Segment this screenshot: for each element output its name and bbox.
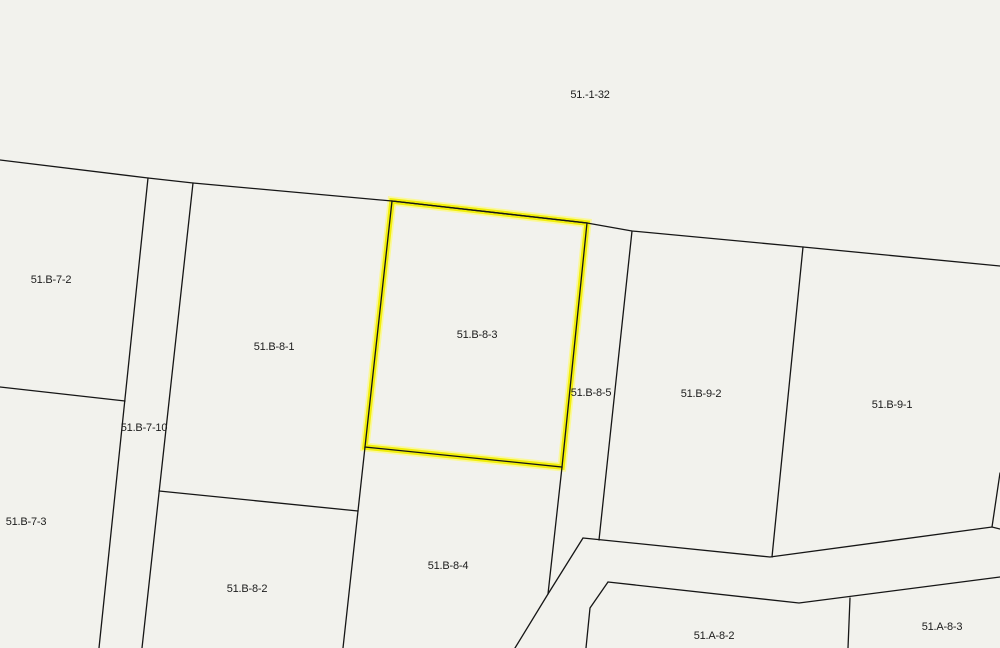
parcel-label-51-a-8-3: 51.A-8-3 <box>922 621 963 633</box>
parcel-label-51-b-8-4: 51.B-8-4 <box>428 560 469 572</box>
parcel-label-51-b-8-2: 51.B-8-2 <box>227 583 268 595</box>
parcel-label-51-b-9-1: 51.B-9-1 <box>872 399 913 411</box>
parcel-map-canvas[interactable]: 51.-1-32 51.B-7-2 51.B-8-1 51.B-8-3 51.B… <box>0 0 1000 648</box>
parcel-label-51-b-7-10: 51.B-7-10 <box>121 422 168 434</box>
parcel-label-51-b-7-3: 51.B-7-3 <box>6 516 47 528</box>
map-svg: 51.-1-32 51.B-7-2 51.B-8-1 51.B-8-3 51.B… <box>0 0 1000 648</box>
parcel-label-51--1-32: 51.-1-32 <box>570 89 609 101</box>
map-background <box>0 0 1000 648</box>
parcel-label-51-b-7-2: 51.B-7-2 <box>31 274 72 286</box>
parcel-label-51-a-8-2: 51.A-8-2 <box>694 630 735 642</box>
parcel-label-51-b-8-3: 51.B-8-3 <box>457 329 498 341</box>
parcel-label-51-b-9-2: 51.B-9-2 <box>681 388 722 400</box>
parcel-label-51-b-8-5: 51.B-8-5 <box>571 387 612 399</box>
parcel-label-51-b-8-1: 51.B-8-1 <box>254 341 295 353</box>
